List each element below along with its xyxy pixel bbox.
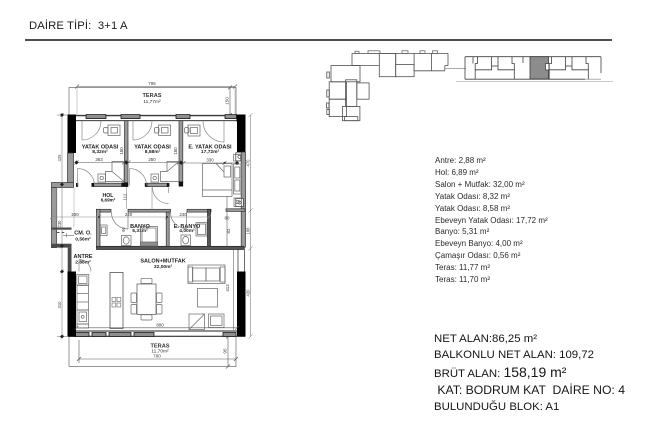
svg-text:80: 80 <box>225 216 230 221</box>
svg-text:413: 413 <box>225 284 230 292</box>
svg-text:250: 250 <box>148 157 156 162</box>
svg-text:200: 200 <box>71 212 79 217</box>
svg-text:800: 800 <box>156 322 164 327</box>
svg-text:8,32m²: 8,32m² <box>92 149 108 155</box>
svg-text:310: 310 <box>57 301 62 309</box>
svg-text:11,77m²: 11,77m² <box>143 99 161 105</box>
svg-text:430: 430 <box>245 289 250 297</box>
svg-text:SALON+MUTFAK: SALON+MUTFAK <box>140 259 185 265</box>
svg-text:330: 330 <box>206 158 214 163</box>
svg-text:6,69m²: 6,69m² <box>101 197 116 202</box>
svg-text:0,56m²: 0,56m² <box>75 237 91 243</box>
svg-text:363: 363 <box>95 157 103 162</box>
svg-text:150: 150 <box>225 97 230 105</box>
svg-text:188: 188 <box>245 227 250 235</box>
svg-text:8,58m²: 8,58m² <box>145 149 161 155</box>
svg-text:240: 240 <box>125 212 133 217</box>
svg-text:90: 90 <box>121 227 126 232</box>
svg-text:4,00m²: 4,00m² <box>179 228 195 234</box>
svg-text:17,72m²: 17,72m² <box>201 149 220 155</box>
svg-text:780: 780 <box>153 354 161 359</box>
svg-text:150: 150 <box>173 147 178 155</box>
svg-text:95: 95 <box>223 348 228 354</box>
svg-text:TERAS: TERAS <box>143 93 162 99</box>
svg-text:CM. O.: CM. O. <box>74 231 92 237</box>
svg-text:425: 425 <box>57 154 62 162</box>
svg-text:240: 240 <box>179 212 187 217</box>
svg-text:TERAS: TERAS <box>151 344 170 350</box>
svg-text:ANTRE: ANTRE <box>74 254 93 260</box>
svg-text:230: 230 <box>57 220 62 228</box>
svg-text:150: 150 <box>119 147 124 155</box>
svg-text:470: 470 <box>245 159 250 167</box>
svg-text:795: 795 <box>148 81 156 86</box>
svg-text:32,00m²: 32,00m² <box>154 264 173 270</box>
svg-text:82: 82 <box>226 228 231 233</box>
